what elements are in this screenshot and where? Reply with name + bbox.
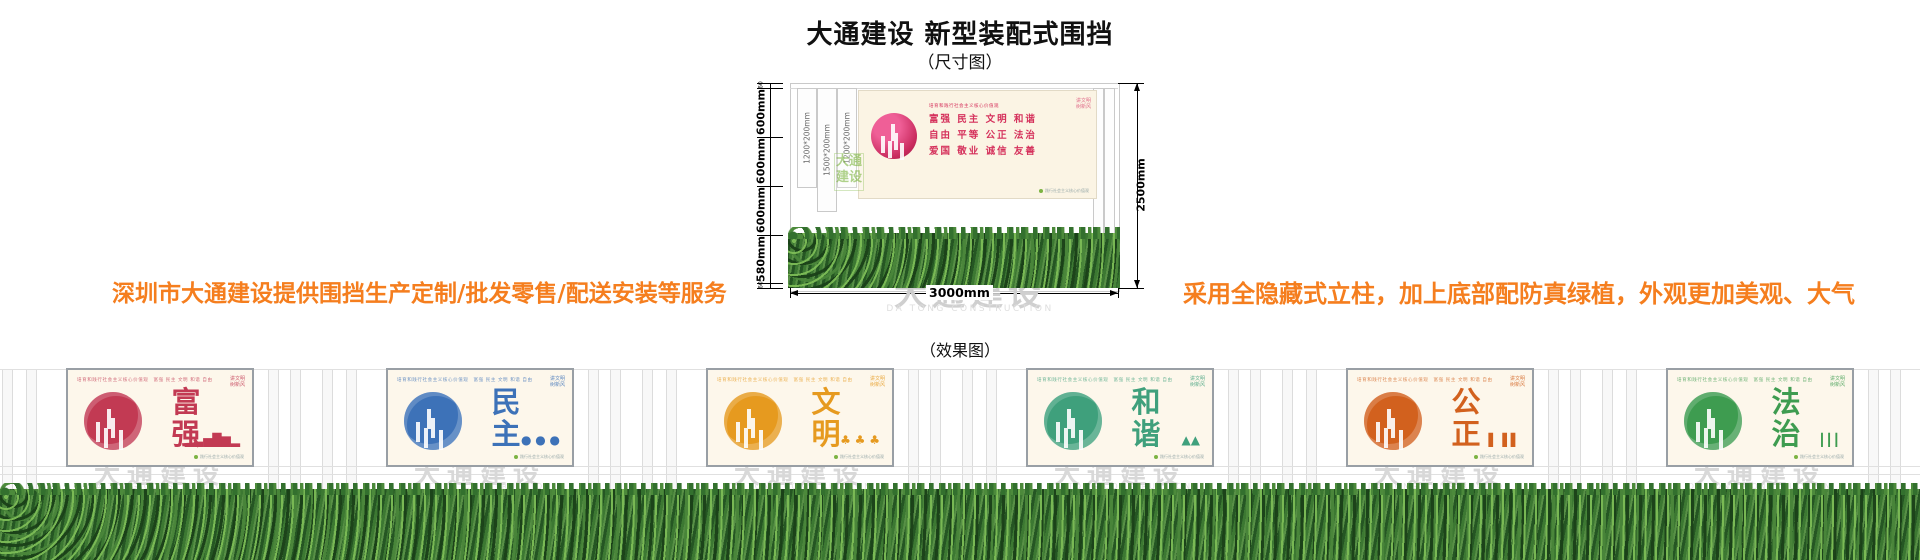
bamboo-motif: ┃┃┃ (1818, 433, 1840, 447)
corner-line-2: 树新风 (870, 382, 885, 388)
corner-line-2: 树新风 (1510, 382, 1525, 388)
panel-corner-slogan: 讲文明 树新风 (230, 376, 245, 388)
height-segment-60-bottom: 60 (758, 281, 765, 289)
height-segment-600-1: 600mm (755, 89, 768, 135)
green-dot-icon (1154, 455, 1158, 459)
effect-diagram-label: （效果图） (0, 337, 1920, 361)
panel-header-strip: 培育和践行社会主义核心价值观 富强 民主 文明 和谐 自由 平等 公正 法治 爱… (717, 377, 854, 383)
panel-header-strip: 培育和践行社会主义核心价值观 富强 民主 文明 和谐 自由 平等 公正 法治 爱… (1677, 377, 1814, 383)
column-label-2: 1500*200mm (823, 124, 832, 176)
panel-header-strip: 培育和践行社会主义核心价值观 富强 民主 文明 和谐 自由 平等 公正 法治 爱… (1357, 377, 1494, 383)
panel-footnote: 践行社会主义核心价值观 (194, 454, 244, 460)
corner-line-2: 树新风 (1076, 104, 1091, 110)
arrow-up-icon (1134, 83, 1140, 91)
papercut-circle-graphic (84, 392, 142, 450)
height-segment-60-top: 60 (758, 81, 765, 89)
skyline-motif: ▁▃▅█▆▂ (185, 433, 240, 447)
effect-view: 大通建设 DA TONG CONSTRUCTION 培育和践行社会主义核心价值观… (0, 361, 1920, 560)
mountains-motif: ▲▲ (1182, 433, 1200, 447)
height-segment-600-2: 600mm (755, 138, 768, 184)
column-strip-1: 1200*200mm (797, 88, 817, 188)
panel-footnote-text: 践行社会主义核心价值观 (1480, 454, 1524, 459)
papercut-circle-graphic (871, 113, 917, 159)
corner-line-2: 树新风 (1830, 382, 1845, 388)
values-panel-wenming: 培育和践行社会主义核心价值观 富强 民主 文明 和谐 自由 平等 公正 法治 爱… (706, 368, 894, 467)
panel-footnote-text: 践行社会主义核心价值观 (200, 454, 244, 459)
corner-line-2: 树新风 (550, 382, 565, 388)
panel-title: 和谐 (1128, 386, 1164, 450)
green-dot-icon (194, 455, 198, 459)
dimension-diagram: 1200*200mm 1500*200mm 1200*200mm 培育和践行社会… (760, 73, 1180, 368)
arrow-down-icon (1134, 280, 1140, 288)
panel-footnote: 践行社会主义核心价值观 (834, 454, 884, 460)
green-logo-watermark: 大通建设 (834, 153, 864, 191)
total-width-label: 3000mm (926, 285, 993, 300)
banner-text-block: 培育和践行社会主义核心价值观 富强 民主 文明 和谐 自由 平等 公正 法治 爱… (929, 103, 1084, 160)
panel-corner-slogan: 讲文明 树新风 (870, 376, 885, 388)
banner-footnote: 践行社会主义核心价值观 (1039, 188, 1089, 194)
total-height-label: 2500mm (1135, 158, 1148, 212)
values-panel-gongzheng: 培育和践行社会主义核心价值观 富强 民主 文明 和谐 自由 平等 公正 法治 爱… (1346, 368, 1534, 467)
promo-text-right: 采用全隐藏式立柱，加上底部配防真绿植，外观更加美观、大气 (1183, 274, 1855, 309)
page-title: 大通建设 新型装配式围挡 (0, 14, 1920, 51)
papercut-circle-graphic (724, 392, 782, 450)
effect-hedge (0, 489, 1920, 560)
arrow-right-icon (1110, 290, 1118, 296)
panel-corner-slogan: 讲文明 树新风 (1190, 376, 1205, 388)
panel-footnote: 践行社会主义核心价值观 (1154, 454, 1204, 460)
panel-footnote-text: 践行社会主义核心价值观 (1160, 454, 1204, 459)
papercut-circle-graphic (1364, 392, 1422, 450)
green-dot-icon (1474, 455, 1478, 459)
promo-text-left: 深圳市大通建设提供围挡生产定制/批发零售/配送安装等服务 (112, 274, 727, 308)
papercut-circle-graphic (404, 392, 462, 450)
column-strip-2: 1500*200mm (817, 88, 837, 212)
values-panel-minzhu: 培育和践行社会主义核心价值观 富强 民主 文明 和谐 自由 平等 公正 法治 爱… (386, 368, 574, 467)
panel-title: 文明 (808, 386, 844, 450)
green-dot-icon (1794, 455, 1798, 459)
drops-motif: ● ● ● (521, 433, 560, 447)
size-diagram-label: （尺寸图） (0, 48, 1920, 73)
values-panel-fazhi: 培育和践行社会主义核心价值观 富强 民主 文明 和谐 自由 平等 公正 法治 爱… (1666, 368, 1854, 467)
diagram-hedge (788, 233, 1120, 288)
panel-corner-slogan: 讲文明 树新风 (1510, 376, 1525, 388)
banner-footnote-text: 践行社会主义核心价值观 (1045, 188, 1089, 193)
corner-line-2: 树新风 (230, 382, 245, 388)
values-panel-fuqiang: 培育和践行社会主义核心价值观 富强 民主 文明 和谐 自由 平等 公正 法治 爱… (66, 368, 254, 467)
right-column-strip-2 (1104, 88, 1115, 235)
panel-header-strip: 培育和践行社会主义核心价值观 富强 民主 文明 和谐 自由 平等 公正 法治 爱… (1037, 377, 1174, 383)
dim-extension (1118, 83, 1144, 84)
panel-title: 民主 (488, 386, 524, 450)
green-dot-icon (834, 455, 838, 459)
panel-corner-slogan: 讲文明 树新风 (1830, 376, 1845, 388)
green-dot-icon (1039, 189, 1043, 193)
dim-extension (1118, 288, 1144, 289)
panel-footnote-text: 践行社会主义核心价值观 (1800, 454, 1844, 459)
trees-motif: ♣ ♣ ♣ (840, 433, 880, 447)
panel-footnote: 践行社会主义核心价值观 (514, 454, 564, 460)
papercut-circle-graphic (1684, 392, 1742, 450)
panel-title: 法治 (1768, 386, 1804, 450)
panel-title: 公正 (1448, 386, 1484, 450)
banner-corner-slogan: 讲文明 树新风 (1076, 98, 1091, 110)
panel-footnote: 践行社会主义核心价值观 (1794, 454, 1844, 460)
panel-header-strip: 培育和践行社会主义核心价值观 富强 民主 文明 和谐 自由 平等 公正 法治 爱… (77, 377, 214, 383)
height-segment-600-3: 600mm (755, 187, 768, 233)
watermark-en: DA TONG CONSTRUCTION (850, 304, 1090, 314)
column-label-1: 1200*200mm (803, 112, 812, 164)
banner-row-2: 自由 平等 公正 法治 (929, 128, 1084, 144)
green-dot-icon (514, 455, 518, 459)
banner-row-3: 爱国 敬业 诚信 友善 (929, 144, 1084, 160)
panel-corner-slogan: 讲文明 树新风 (550, 376, 565, 388)
poster: 大通建设 新型装配式围挡 （尺寸图） 深圳市大通建设提供围挡生产定制/批发零售/… (0, 0, 1920, 560)
buildings-motif: ▌▐ ▌ (1489, 433, 1521, 447)
arrow-left-icon (790, 290, 798, 296)
panel-footnote-text: 践行社会主义核心价值观 (520, 454, 564, 459)
banner-header: 培育和践行社会主义核心价值观 (929, 103, 1084, 109)
height-segment-580: 580mm (755, 236, 768, 282)
corner-line-2: 树新风 (1190, 382, 1205, 388)
papercut-circle-graphic (1044, 392, 1102, 450)
panel-footnote-text: 践行社会主义核心价值观 (840, 454, 884, 459)
panel-header-strip: 培育和践行社会主义核心价值观 富强 民主 文明 和谐 自由 平等 公正 法治 爱… (397, 377, 534, 383)
banner-row-1: 富强 民主 文明 和谐 (929, 112, 1084, 128)
panel-footnote: 践行社会主义核心价值观 (1474, 454, 1524, 460)
core-values-banner: 培育和践行社会主义核心价值观 富强 民主 文明 和谐 自由 平等 公正 法治 爱… (858, 90, 1097, 199)
values-panel-hexie: 培育和践行社会主义核心价值观 富强 民主 文明 和谐 自由 平等 公正 法治 爱… (1026, 368, 1214, 467)
